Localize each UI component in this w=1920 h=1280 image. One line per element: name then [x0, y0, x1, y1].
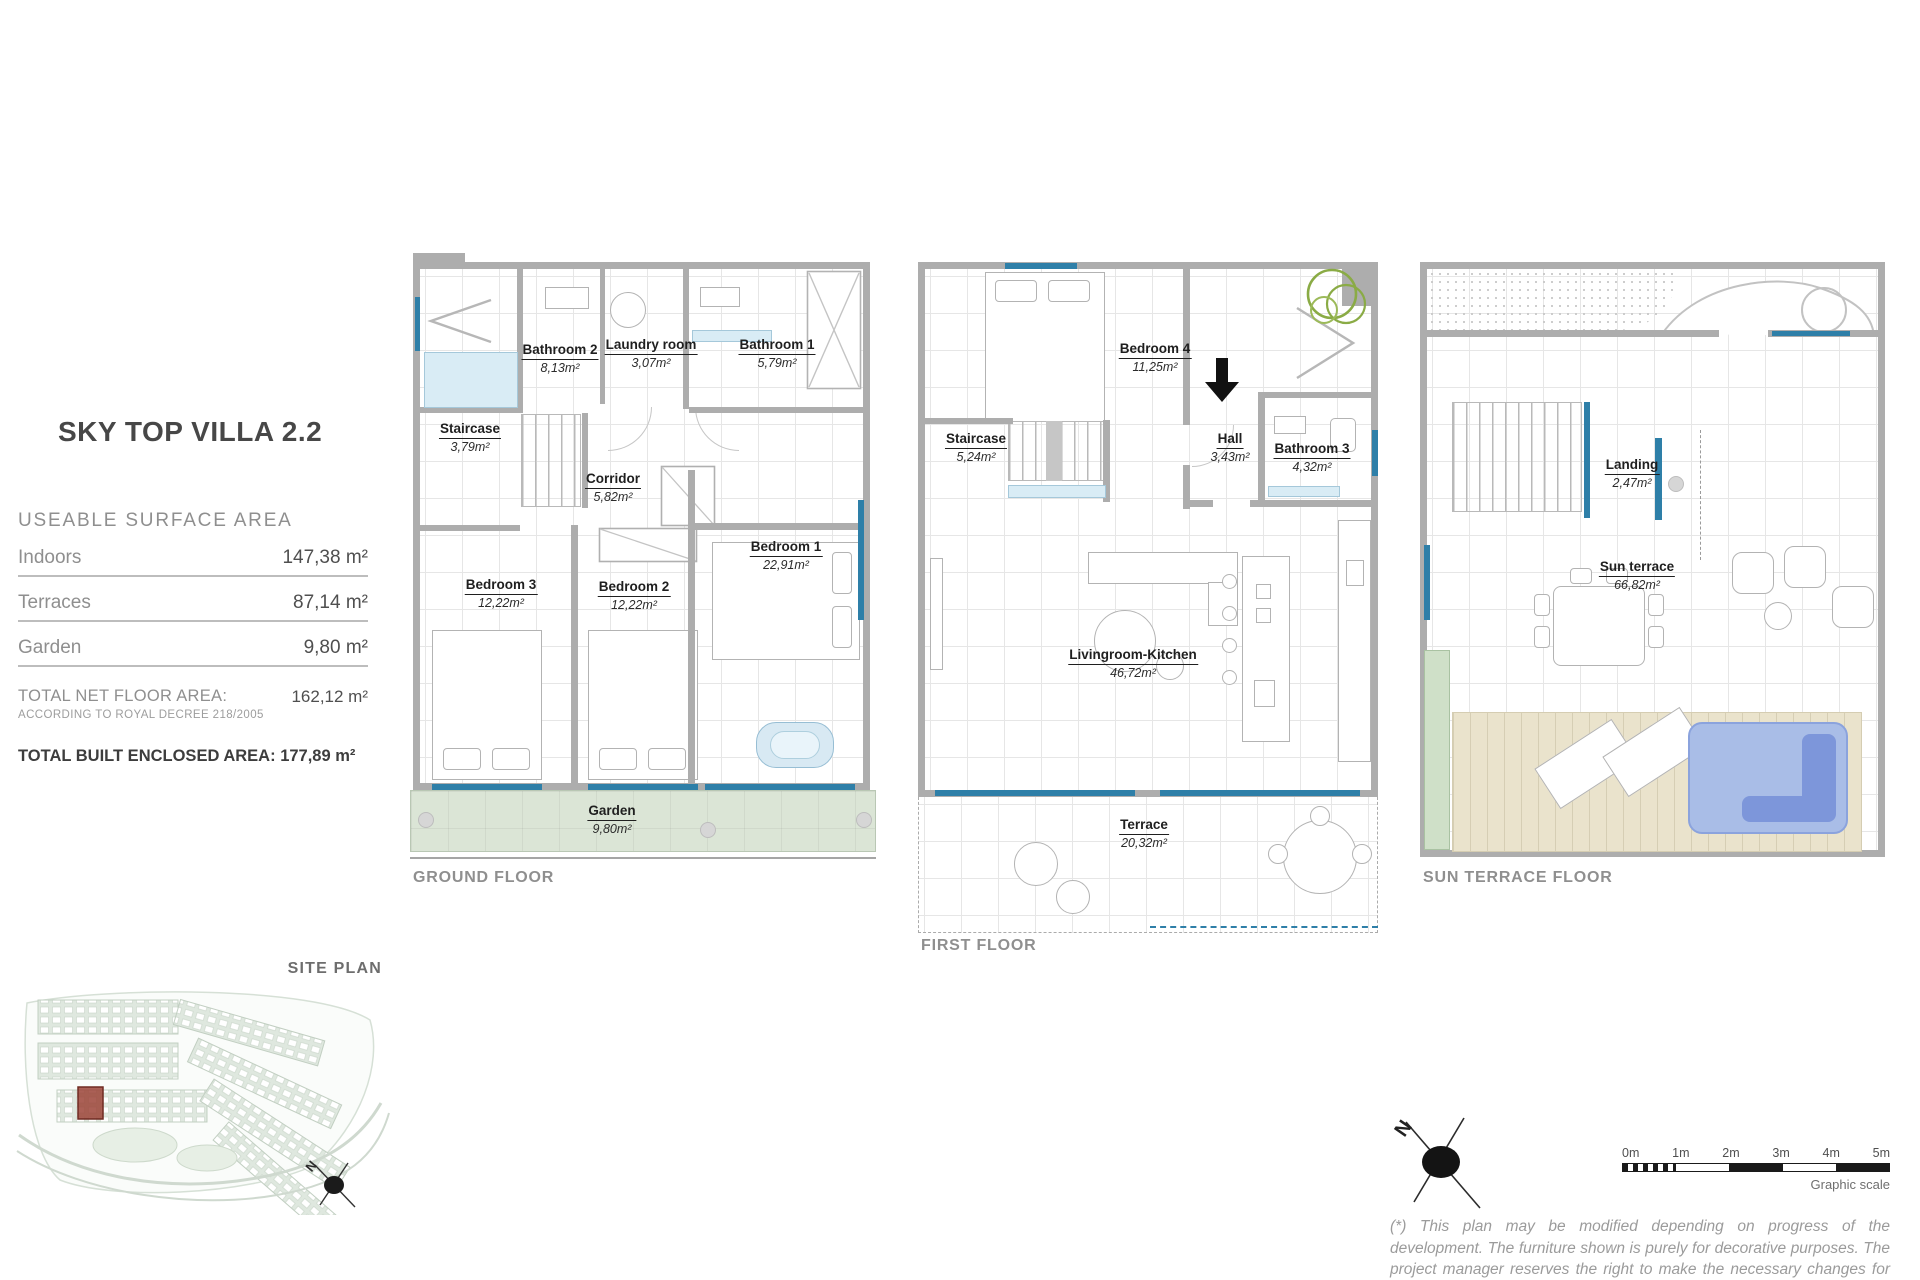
room-name: Bathroom 2 [521, 342, 598, 360]
room-label-landing: Landing 2,47m² [1605, 456, 1660, 490]
total-built-value: 177,89 m² [280, 747, 355, 765]
pillow [492, 748, 530, 770]
bar-stool [1222, 638, 1237, 653]
surface-row-value: 87,14 m² [293, 592, 368, 614]
outdoor-dining-table [1553, 586, 1645, 666]
surface-row-value: 147,38 m² [282, 547, 368, 569]
dining-chair [1534, 626, 1550, 648]
total-net-label: TOTAL NET FLOOR AREA: [18, 687, 227, 707]
terrace-chair [1352, 844, 1372, 864]
room-name: Bedroom 2 [598, 579, 671, 597]
ground-floor-caption: GROUND FLOOR [413, 869, 554, 887]
site-plan-label: SITE PLAN [242, 960, 382, 978]
wardrobe [598, 527, 698, 563]
bar-stool [1222, 574, 1237, 589]
window-glass [858, 500, 864, 620]
pillow [1048, 280, 1090, 302]
terrace-boundary-dashed [1150, 926, 1378, 928]
total-net-row: TOTAL NET FLOOR AREA: 162,12 m² [18, 687, 368, 707]
wall [1258, 392, 1371, 398]
wall [689, 407, 863, 413]
room-label-bedroom4: Bedroom 4 11,25m² [1119, 340, 1192, 374]
highlighted-unit [78, 1087, 103, 1119]
room-label-bathroom2: Bathroom 2 8,13m² [521, 341, 598, 375]
wall [925, 418, 1013, 424]
room-area: 12,22m² [465, 596, 538, 610]
garden-area [410, 790, 876, 852]
window-glass [705, 784, 855, 790]
total-built-label: TOTAL BUILT ENCLOSED AREA: [18, 747, 276, 765]
bathroom-counter [1268, 486, 1340, 497]
terrace-plant [1056, 880, 1090, 914]
room-name: Staircase [439, 421, 501, 439]
bathroom-sink [700, 287, 740, 307]
surface-row: Indoors 147,38 m² [18, 547, 368, 577]
pillow [599, 748, 637, 770]
surface-row-label: Garden [18, 637, 81, 659]
room-name: Sun terrace [1599, 559, 1675, 577]
glass-balustrade [1584, 402, 1590, 518]
pillow [995, 280, 1037, 302]
room-label-garden: Garden 9,80m² [587, 802, 636, 836]
floor-plan-sheet: SKY TOP VILLA 2.2 USEABLE SURFACE AREA I… [0, 0, 1920, 1280]
room-label-sun-terrace: Sun terrace 66,82m² [1599, 558, 1675, 592]
pillow [648, 748, 686, 770]
room-area: 66,82m² [1599, 578, 1675, 592]
wardrobe-chevron-icon [427, 298, 493, 344]
pillow [832, 552, 852, 594]
kitchen-sink [1346, 560, 1364, 586]
window-glass [415, 297, 420, 351]
room-name: Bedroom 1 [750, 539, 823, 557]
room-label-bedroom1: Bedroom 1 22,91m² [750, 538, 823, 572]
bar-stool [1222, 670, 1237, 685]
room-label-terrace: Terrace 20,32m² [1119, 816, 1169, 850]
room-name: Hall [1217, 431, 1244, 449]
room-area: 4,32m² [1273, 460, 1350, 474]
dining-chair [1570, 568, 1592, 584]
room-area: 9,80m² [587, 822, 636, 836]
bathroom-sink [1274, 416, 1306, 434]
staircase-core [1046, 421, 1062, 481]
room-name: Garden [587, 803, 636, 821]
room-area: 3,07m² [605, 356, 698, 370]
terrace-light [1668, 476, 1684, 492]
wall [1183, 500, 1213, 507]
room-area: 22,91m² [750, 558, 823, 572]
room-name: Corridor [585, 471, 641, 489]
wall [695, 523, 863, 530]
room-name: Staircase [945, 431, 1007, 449]
room-name: Terrace [1119, 817, 1169, 835]
room-area: 11,25m² [1119, 360, 1192, 374]
entrance-arrow-icon [1205, 382, 1239, 402]
room-name: Landing [1605, 457, 1660, 475]
royal-decree-note: ACCORDING TO ROYAL DECREE 218/2005 [18, 709, 368, 721]
stair-window-sill [1008, 485, 1106, 498]
wall [571, 525, 578, 785]
total-net-value: 162,12 m² [291, 687, 368, 707]
room-label-laundry: Laundry room 3,07m² [605, 336, 698, 370]
disclaimer-text: (*) This plan may be modified depending … [1390, 1216, 1890, 1280]
room-name: Bathroom 1 [738, 337, 815, 355]
hob [1256, 608, 1271, 623]
scale-segment [1676, 1164, 1729, 1171]
room-name: Bedroom 4 [1119, 341, 1192, 359]
garden-light [700, 822, 716, 838]
window-glass [1005, 263, 1077, 269]
room-name: Laundry room [605, 337, 698, 355]
window-glass [432, 784, 542, 790]
bar-stool [1222, 606, 1237, 621]
wall [420, 525, 520, 531]
terrace-table [1283, 820, 1357, 894]
tv-cabinet [930, 558, 943, 670]
sun-terrace-caption: SUN TERRACE FLOOR [1423, 869, 1613, 887]
window-glass [1424, 545, 1430, 620]
bathtub-basin [770, 731, 820, 759]
dining-chair [1648, 594, 1664, 616]
shower-enclosure [806, 270, 862, 390]
bathroom-sink [545, 287, 589, 309]
hob [1256, 584, 1271, 599]
scale-segment [1836, 1164, 1889, 1171]
terrace-chair [1268, 844, 1288, 864]
room-name: Livingroom-Kitchen [1068, 647, 1198, 665]
plot-boundary-line [410, 857, 876, 859]
room-name: Bedroom 3 [465, 577, 538, 595]
window-glass [935, 790, 1135, 796]
terrace-plant [1014, 842, 1058, 886]
total-built-row: TOTAL BUILT ENCLOSED AREA: 177,89 m² [18, 747, 368, 766]
pillow [443, 748, 481, 770]
window-glass [1372, 430, 1378, 476]
side-table [1764, 602, 1792, 630]
room-label-corridor: Corridor 5,82m² [585, 470, 641, 504]
scale-caption: Graphic scale [1622, 1177, 1890, 1192]
plant-icon [1298, 264, 1372, 336]
page-title: SKY TOP VILLA 2.2 [58, 416, 368, 448]
scale-segment [1623, 1164, 1676, 1171]
garden-light [856, 812, 872, 828]
staircase-treads [521, 414, 581, 507]
site-plan-drawing: N [15, 985, 395, 1215]
room-label-bathroom3: Bathroom 3 4,32m² [1273, 440, 1350, 474]
north-letter: N [1392, 1116, 1417, 1140]
room-label-bathroom1: Bathroom 1 5,79m² [738, 336, 815, 370]
room-label-bedroom2: Bedroom 2 12,22m² [598, 578, 671, 612]
gravel-roof-area [1428, 270, 1678, 330]
scale-tick: 1m [1672, 1146, 1689, 1160]
room-name: Bathroom 3 [1273, 441, 1350, 459]
planter-strip [1424, 650, 1450, 850]
surface-row-value: 9,80 m² [304, 637, 368, 659]
kitchen-sink [1254, 680, 1275, 707]
first-floor-caption: FIRST FLOOR [921, 937, 1036, 955]
info-panel: SKY TOP VILLA 2.2 USEABLE SURFACE AREA I… [18, 416, 368, 766]
surface-row: Terraces 87,14 m² [18, 592, 368, 622]
room-area: 8,13m² [521, 361, 598, 375]
room-area: 46,72m² [1068, 666, 1198, 680]
room-label-staircase-ground: Staircase 3,79m² [439, 420, 501, 454]
room-area: 5,82m² [585, 490, 641, 504]
compass-icon: N [1392, 1102, 1492, 1220]
entrance-arrow-stem [1216, 358, 1228, 382]
scale-segment [1783, 1164, 1836, 1171]
room-area: 5,79m² [738, 356, 815, 370]
garden-light [418, 812, 434, 828]
surface-row: Garden 9,80 m² [18, 637, 368, 667]
surface-row-label: Indoors [18, 547, 81, 569]
wall [688, 470, 695, 785]
lounge-chair [1784, 546, 1826, 588]
kitchen-counter [1338, 520, 1371, 762]
window-glass [1160, 790, 1360, 796]
room-label-bedroom3: Bedroom 3 12,22m² [465, 576, 538, 610]
room-area: 3,43m² [1211, 450, 1250, 464]
graphic-scale: 0m 1m 2m 3m 4m 5m Graphic scale [1622, 1146, 1890, 1192]
wall [1427, 330, 1719, 337]
pool-lounger [1742, 796, 1822, 822]
scale-tick: 3m [1772, 1146, 1789, 1160]
staircase-treads [1452, 402, 1582, 512]
wall [1258, 392, 1265, 500]
room-area: 5,24m² [945, 450, 1007, 464]
room-label-living: Livingroom-Kitchen 46,72m² [1068, 646, 1198, 680]
room-area: 3,79m² [439, 440, 501, 454]
room-label-staircase-first: Staircase 5,24m² [945, 430, 1007, 464]
wall [1250, 500, 1371, 507]
room-area: 12,22m² [598, 598, 671, 612]
wet-room-floor [424, 352, 518, 408]
surface-area-header: USEABLE SURFACE AREA [18, 510, 368, 532]
surface-row-label: Terraces [18, 592, 91, 614]
room-label-hall: Hall 3,43m² [1211, 430, 1250, 464]
pillow [832, 606, 852, 648]
room-area: 20,32m² [1119, 836, 1169, 850]
room-area: 2,47m² [1605, 476, 1660, 490]
dashed-guide-line [1700, 430, 1701, 560]
dining-chair [1648, 626, 1664, 648]
dining-chair [1534, 594, 1550, 616]
window-glass [1772, 331, 1850, 336]
window-glass [588, 784, 698, 790]
terrace-chair [1310, 806, 1330, 826]
scale-bar [1622, 1163, 1890, 1172]
scale-segment [1729, 1164, 1782, 1171]
scale-tick: 5m [1873, 1146, 1890, 1160]
scale-tick: 0m [1622, 1146, 1639, 1160]
wall [413, 253, 465, 263]
lounge-chair [1732, 552, 1774, 594]
scale-tick: 2m [1722, 1146, 1739, 1160]
scale-tick: 4m [1823, 1146, 1840, 1160]
washing-machine [610, 292, 646, 328]
sofa [1088, 552, 1238, 584]
scale-ticks: 0m 1m 2m 3m 4m 5m [1622, 1146, 1890, 1160]
lounge-chair [1832, 586, 1874, 628]
